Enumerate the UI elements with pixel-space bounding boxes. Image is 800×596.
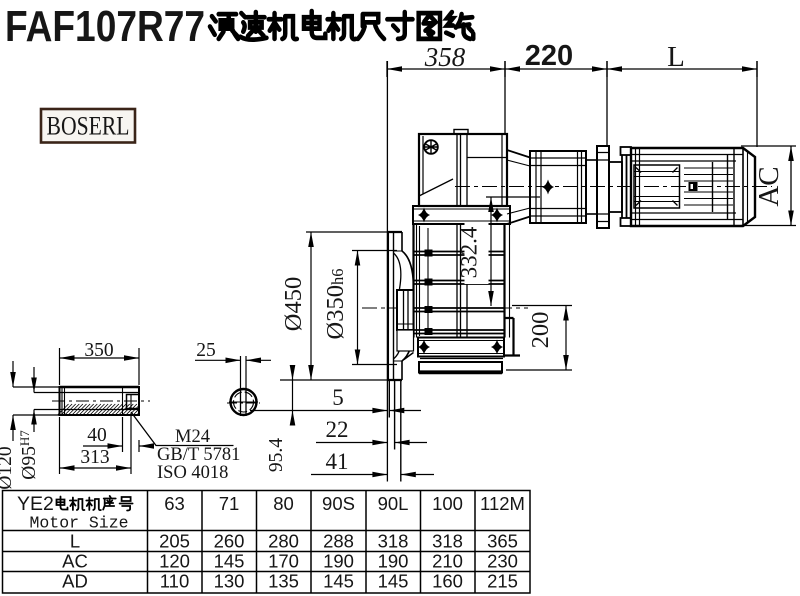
svg-text:230: 230: [487, 551, 518, 572]
svg-text:160: 160: [432, 571, 463, 592]
svg-text:95.4: 95.4: [266, 438, 287, 472]
svg-text:318: 318: [378, 531, 409, 552]
svg-text:Ø120: Ø120: [0, 446, 16, 489]
svg-text:ISO 4018: ISO 4018: [157, 463, 228, 483]
svg-text:AC: AC: [753, 166, 785, 206]
svg-text:220: 220: [525, 40, 573, 72]
svg-text:M24: M24: [175, 427, 210, 447]
svg-text:BOSERL: BOSERL: [47, 112, 130, 141]
svg-text:130: 130: [214, 571, 245, 592]
svg-text:260: 260: [214, 531, 245, 552]
svg-text:350: 350: [84, 340, 113, 361]
svg-text:FAF107R77: FAF107R77: [5, 2, 205, 51]
svg-text:280: 280: [268, 531, 299, 552]
svg-text:YE2: YE2: [17, 493, 54, 515]
svg-text:90L: 90L: [378, 493, 409, 514]
svg-text:L: L: [70, 531, 80, 552]
svg-text:41: 41: [326, 449, 349, 474]
svg-text:145: 145: [323, 571, 354, 592]
svg-text:112M: 112M: [480, 493, 525, 514]
svg-text:170: 170: [268, 551, 299, 572]
svg-text:25: 25: [196, 340, 216, 361]
svg-text:Ø450: Ø450: [280, 277, 307, 331]
svg-text:22: 22: [326, 417, 349, 442]
svg-text:80: 80: [273, 493, 294, 514]
svg-text:100: 100: [432, 493, 463, 514]
svg-text:GB/T 5781: GB/T 5781: [157, 445, 240, 465]
svg-text:358: 358: [424, 42, 466, 72]
svg-text:63: 63: [164, 493, 185, 514]
svg-text:AD: AD: [62, 571, 88, 592]
svg-text:313: 313: [80, 447, 109, 468]
svg-text:40: 40: [87, 425, 107, 446]
svg-text:AC: AC: [62, 551, 88, 572]
svg-text:71: 71: [219, 493, 240, 514]
svg-text:200: 200: [527, 312, 554, 349]
svg-text:145: 145: [378, 571, 409, 592]
svg-text:190: 190: [323, 551, 354, 572]
svg-text:332.4: 332.4: [457, 226, 482, 278]
svg-text:215: 215: [487, 571, 518, 592]
svg-text:120: 120: [159, 551, 190, 572]
svg-text:288: 288: [323, 531, 354, 552]
svg-text:110: 110: [160, 571, 190, 592]
svg-text:145: 145: [214, 551, 245, 572]
svg-text:210: 210: [432, 551, 463, 572]
svg-text:190: 190: [378, 551, 409, 572]
svg-text:205: 205: [159, 531, 190, 552]
svg-text:318: 318: [432, 531, 463, 552]
svg-text:135: 135: [268, 571, 299, 592]
svg-text:L: L: [667, 41, 685, 73]
svg-text:365: 365: [487, 531, 518, 552]
svg-text:90S: 90S: [322, 493, 355, 514]
svg-text:5: 5: [332, 385, 344, 410]
